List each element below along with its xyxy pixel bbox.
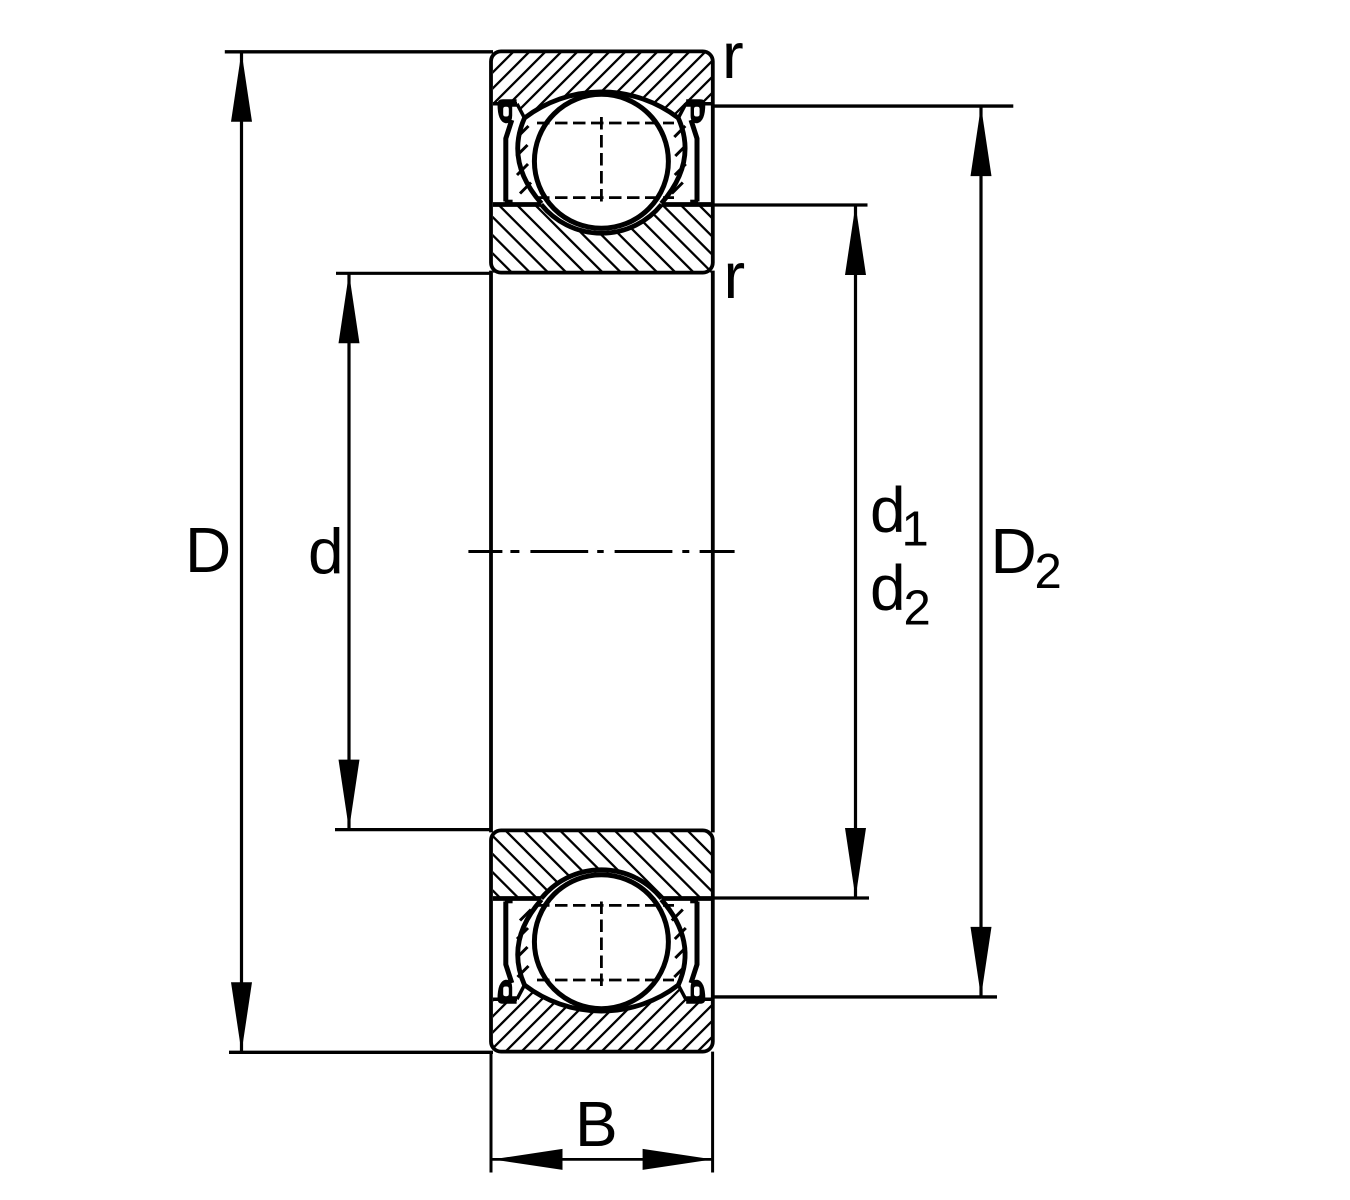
svg-text:2: 2 bbox=[1035, 545, 1062, 599]
svg-text:1: 1 bbox=[902, 503, 929, 557]
svg-text:D: D bbox=[991, 515, 1037, 587]
svg-text:d: d bbox=[870, 552, 906, 624]
svg-text:r: r bbox=[722, 19, 744, 92]
svg-text:d: d bbox=[308, 516, 344, 588]
svg-text:2: 2 bbox=[904, 582, 931, 636]
svg-text:r: r bbox=[724, 239, 746, 312]
svg-text:B: B bbox=[575, 1088, 618, 1160]
svg-text:d: d bbox=[870, 474, 906, 546]
svg-text:D: D bbox=[185, 514, 231, 586]
